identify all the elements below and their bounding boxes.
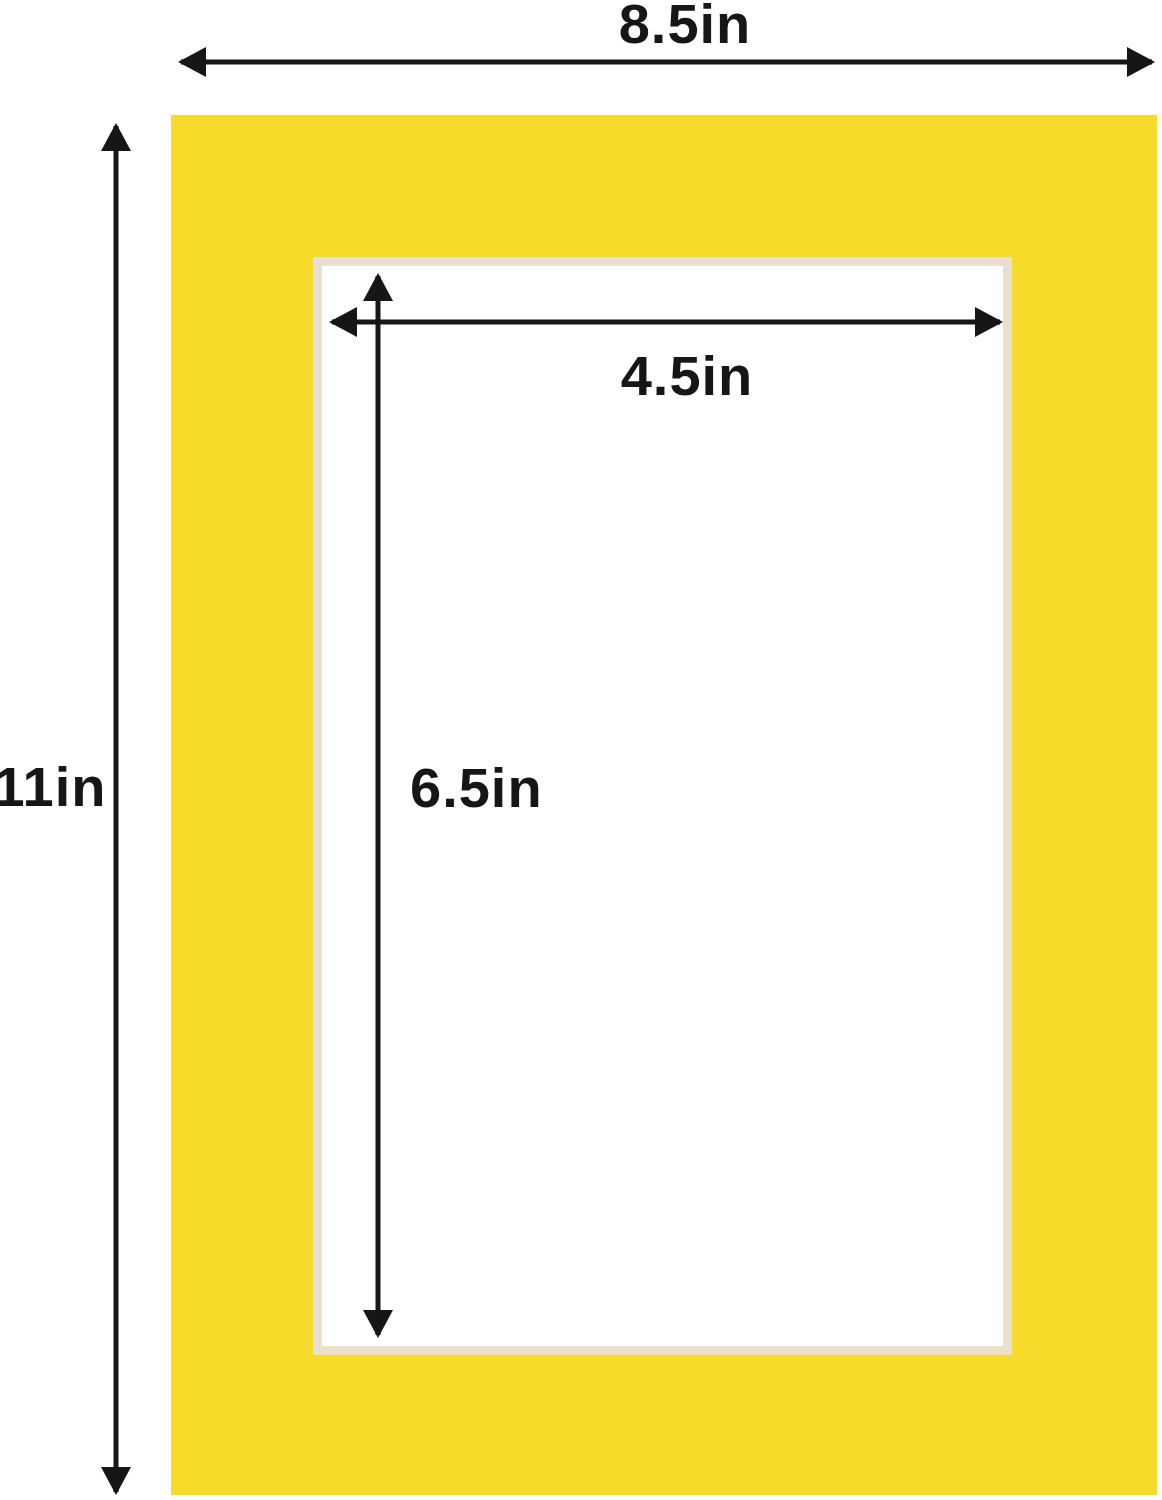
arrowhead-down-icon	[101, 1467, 131, 1495]
dimension-line	[181, 60, 1152, 65]
dimension-line	[332, 320, 1000, 325]
dimension-line	[376, 276, 381, 1335]
overall-height-label: 11in	[0, 759, 106, 815]
opening-width-arrow	[329, 306, 1003, 338]
arrowhead-right-icon	[975, 307, 1003, 337]
dimension-line	[114, 126, 119, 1492]
arrowhead-down-icon	[363, 1310, 393, 1338]
opening-width-label: 4.5in	[621, 348, 754, 404]
mat-board-dimension-diagram: 8.5in 11in 4.5in 6.5in	[0, 0, 1162, 1500]
opening-height-label: 6.5in	[410, 760, 543, 816]
overall-width-label: 8.5in	[619, 0, 752, 52]
arrowhead-right-icon	[1127, 47, 1155, 77]
opening-height-arrow	[362, 273, 394, 1338]
